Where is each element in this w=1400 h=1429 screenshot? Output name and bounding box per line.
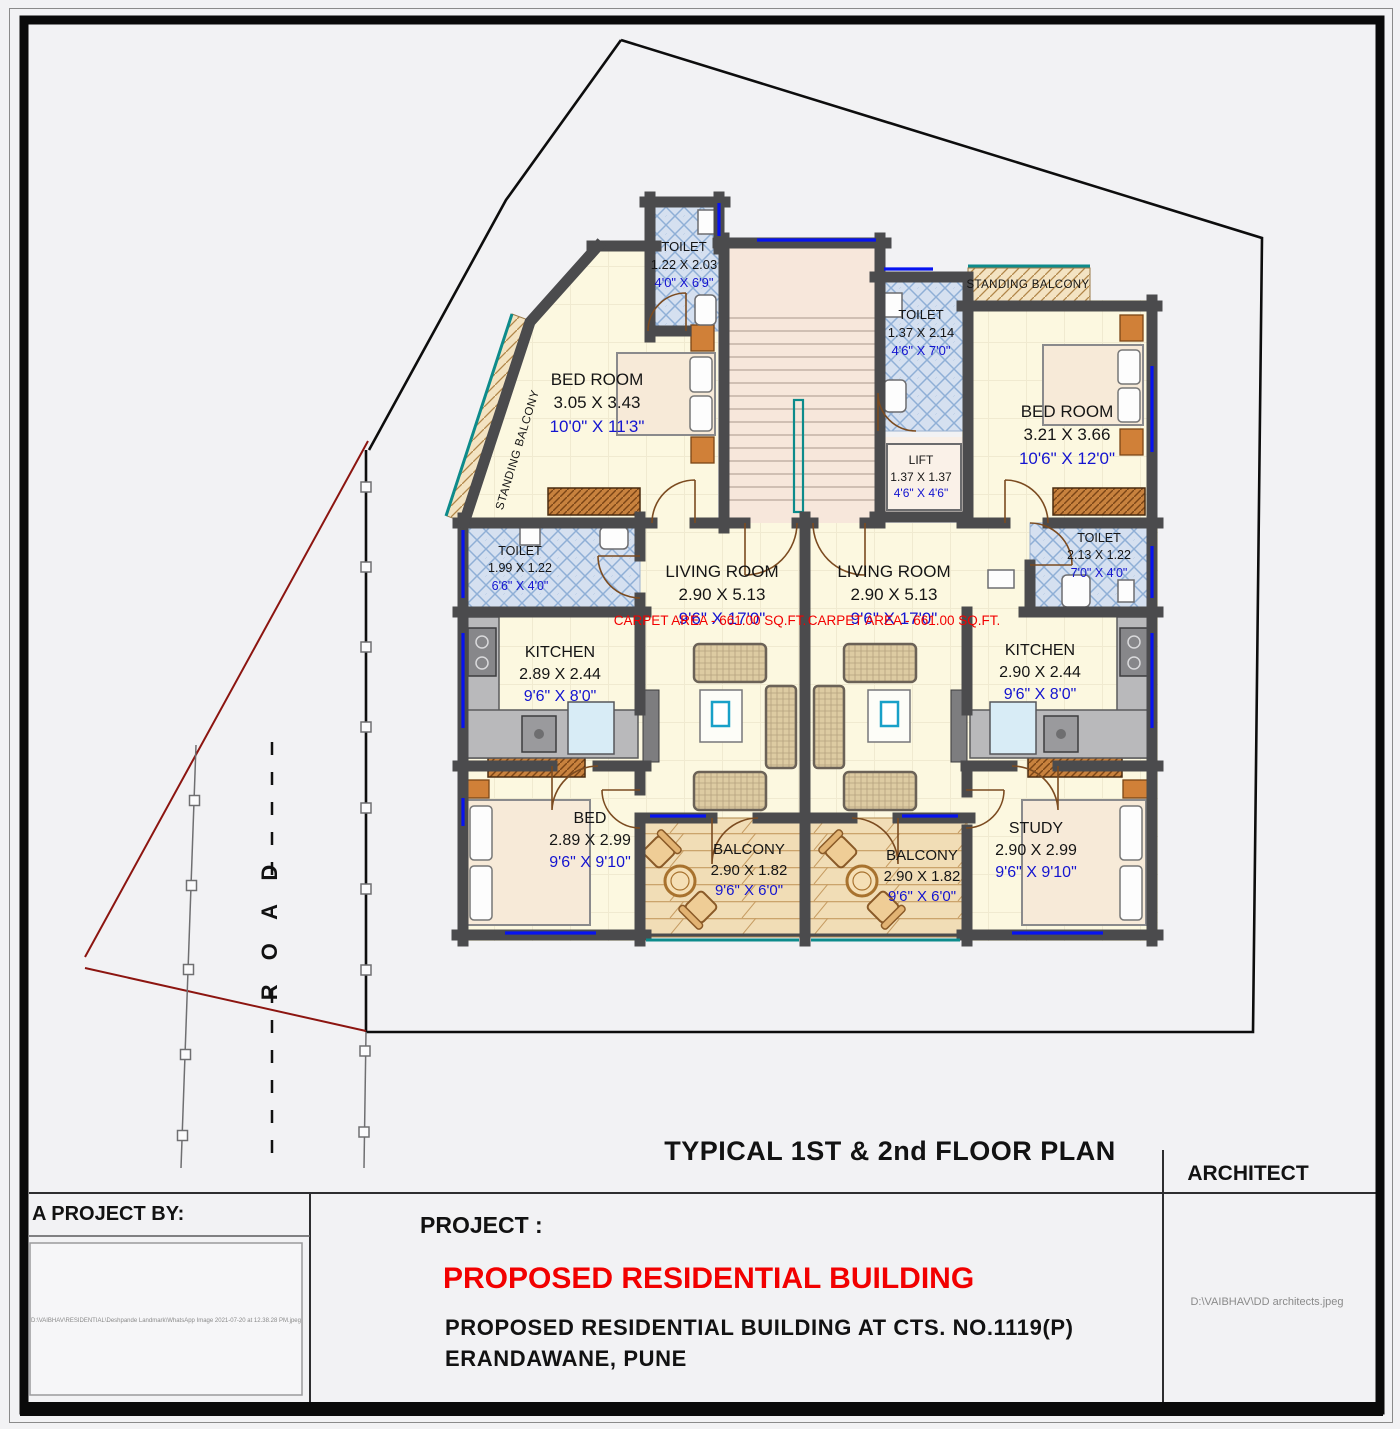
site-red-lines <box>85 441 368 1031</box>
room-label-toilet-top-right: TOILET 1.37 X 2.14 4'6" X 7'0" <box>888 306 955 360</box>
room-label-bed-left: BED 2.89 X 2.99 9'6" X 9'10" <box>549 808 631 874</box>
room-dim-metric: 2.89 X 2.44 <box>519 664 601 686</box>
project-by-image-placeholder: D:\VAIBHAV\RESIDENTIAL\Deshpande Landmar… <box>31 1318 301 1324</box>
room-dim-imperial: 9'6" X 9'10" <box>995 862 1077 884</box>
architect-image-placeholder: D:\VAIBHAV\DD architects.jpeg <box>1190 1296 1343 1308</box>
room-name: BALCONY <box>884 846 961 867</box>
room-dim-metric: 1.37 X 1.37 <box>890 469 951 486</box>
room-name: LIFT <box>890 452 951 469</box>
wardrobe-upper-left <box>548 488 640 515</box>
wardrobe-upper-right <box>1053 488 1145 515</box>
room-dim-imperial: 9'6" X 8'0" <box>519 686 601 708</box>
room-name: BALCONY <box>711 840 788 861</box>
room-name: TOILET <box>488 543 552 560</box>
room-label-balcony-left: BALCONY 2.90 X 1.82 9'6" X 6'0" <box>711 840 788 902</box>
room-dim-metric: 3.05 X 3.43 <box>550 391 645 414</box>
room-label-lift: LIFT 1.37 X 1.37 4'6" X 4'6" <box>890 452 951 502</box>
room-label-standing-balcony-right: STANDING BALCONY <box>966 279 1089 291</box>
room-dim-metric: 2.90 X 2.44 <box>999 662 1081 684</box>
drawing-sheet: TOILET 1.22 X 2.03 4'0" X 6'9" TOILET 1.… <box>0 0 1400 1429</box>
room-dim-metric: 1.37 X 2.14 <box>888 324 955 342</box>
room-dim-metric: 1.22 X 2.03 <box>651 256 718 274</box>
room-dim-imperial: 4'6" X 4'6" <box>890 485 951 502</box>
project-address-line2: ERANDAWANE, PUNE <box>445 1346 687 1372</box>
room-dim-metric: 2.89 X 2.99 <box>549 830 631 852</box>
road-label: R O A D <box>257 856 283 1000</box>
room-dim-metric: 3.21 X 3.66 <box>1019 423 1115 446</box>
room-name: KITCHEN <box>519 642 601 664</box>
architect-label: ARCHITECT <box>1187 1162 1308 1186</box>
project-label: PROJECT : <box>420 1212 543 1239</box>
plan-title: TYPICAL 1ST & 2nd FLOOR PLAN <box>664 1136 1116 1167</box>
room-dim-metric: 2.90 X 5.13 <box>665 583 778 606</box>
room-name: LIVING ROOM <box>837 560 950 583</box>
carpet-area-left: CARPET AREA - 661.00 SQ.FT. <box>614 613 807 628</box>
room-label-bedroom-left: BED ROOM 3.05 X 3.43 10'0" X 11'3" <box>550 368 645 438</box>
carpet-area-right: CARPET AREA - 661.00 SQ.FT. <box>808 613 1001 628</box>
room-label-toilet-top-left: TOILET 1.22 X 2.03 4'0" X 6'9" <box>651 238 718 292</box>
room-dim-imperial: 4'6" X 7'0" <box>888 342 955 360</box>
room-dim-imperial: 6'6" X 4'0" <box>488 578 552 595</box>
room-dim-imperial: 9'6" X 6'0" <box>711 881 788 902</box>
room-dim-metric: 1.99 X 1.22 <box>488 560 552 577</box>
project-by-label: A PROJECT BY: <box>32 1203 184 1226</box>
room-name: TOILET <box>888 306 955 324</box>
room-name: KITCHEN <box>999 640 1081 662</box>
floor-plan-drawing <box>0 0 1400 1429</box>
room-name: BED <box>549 808 631 830</box>
room-dim-imperial: 7'0" X 4'0" <box>1067 565 1131 582</box>
room-dim-imperial: 4'0" X 6'9" <box>651 274 718 292</box>
room-name: TOILET <box>651 238 718 256</box>
room-dim-metric: 2.90 X 1.82 <box>884 867 961 888</box>
room-label-kitchen-right: KITCHEN 2.90 X 2.44 9'6" X 8'0" <box>999 640 1081 706</box>
room-dim-imperial: 9'6" X 6'0" <box>884 887 961 908</box>
room-name: LIVING ROOM <box>665 560 778 583</box>
room-name: BED ROOM <box>1019 400 1115 423</box>
room-dim-metric: 2.13 X 1.22 <box>1067 547 1131 564</box>
project-name: PROPOSED RESIDENTIAL BUILDING <box>443 1262 974 1296</box>
room-dim-metric: 2.90 X 1.82 <box>711 861 788 882</box>
room-label-toilet-mid-left: TOILET 1.99 X 1.22 6'6" X 4'0" <box>488 543 552 595</box>
room-label-study-right: STUDY 2.90 X 2.99 9'6" X 9'10" <box>995 818 1077 884</box>
room-name: BED ROOM <box>550 368 645 391</box>
room-dim-imperial: 10'6" X 12'0" <box>1019 447 1115 470</box>
fence-line-left <box>178 745 200 1168</box>
room-name: TOILET <box>1067 530 1131 547</box>
room-name: STUDY <box>995 818 1077 840</box>
room-dim-imperial: 10'0" X 11'3" <box>550 415 645 438</box>
room-dim-metric: 2.90 X 5.13 <box>837 583 950 606</box>
room-dim-metric: 2.90 X 2.99 <box>995 840 1077 862</box>
room-label-balcony-right: BALCONY 2.90 X 1.82 9'6" X 6'0" <box>884 846 961 908</box>
project-address-line1: PROPOSED RESIDENTIAL BUILDING AT CTS. NO… <box>445 1315 1074 1341</box>
room-label-kitchen-left: KITCHEN 2.89 X 2.44 9'6" X 8'0" <box>519 642 601 708</box>
room-label-bedroom-right: BED ROOM 3.21 X 3.66 10'6" X 12'0" <box>1019 400 1115 470</box>
room-label-toilet-mid-right: TOILET 2.13 X 1.22 7'0" X 4'0" <box>1067 530 1131 582</box>
room-dim-imperial: 9'6" X 8'0" <box>999 684 1081 706</box>
room-dim-imperial: 9'6" X 9'10" <box>549 852 631 874</box>
